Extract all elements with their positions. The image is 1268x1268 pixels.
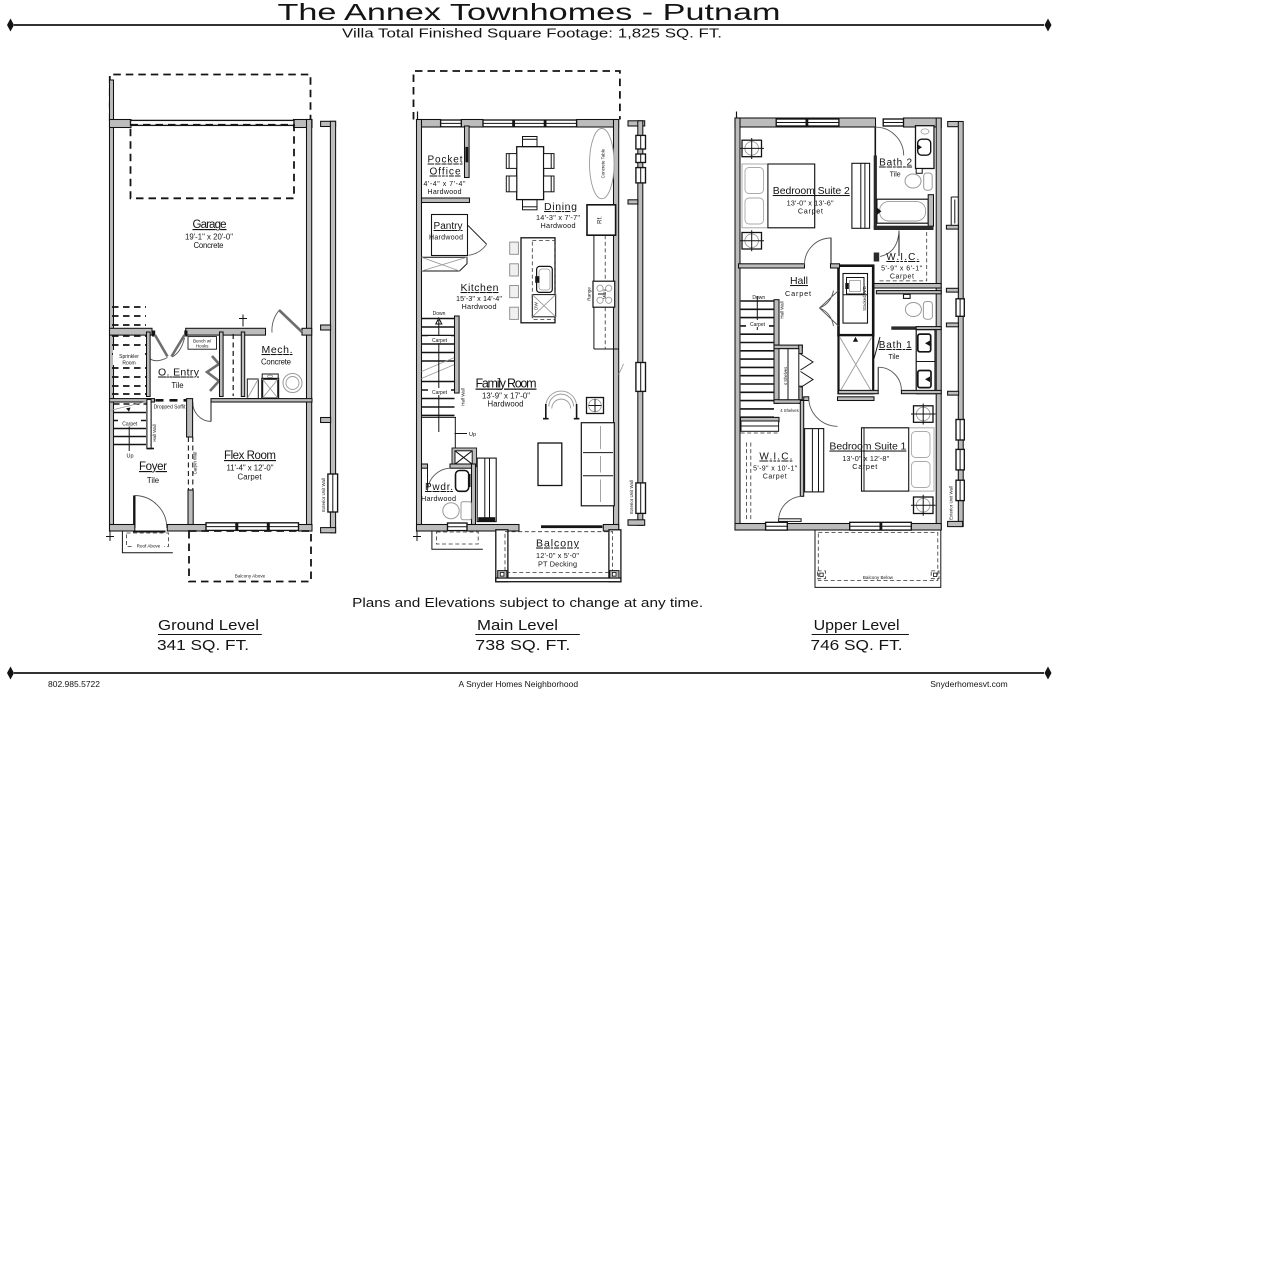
svg-text:Bath 1: Bath 1 bbox=[879, 340, 912, 351]
svg-text:Tile: Tile bbox=[890, 172, 901, 179]
svg-text:Carpet: Carpet bbox=[890, 274, 914, 281]
svg-text:Hardwood: Hardwood bbox=[428, 189, 462, 196]
svg-text:Micro: Micro bbox=[602, 288, 607, 299]
svg-text:Hall Wall: Hall Wall bbox=[780, 301, 785, 318]
svg-text:Plans and Elevations subject t: Plans and Elevations subject to change a… bbox=[352, 595, 703, 610]
svg-text:11'-4" x 12'-0": 11'-4" x 12'-0" bbox=[227, 464, 274, 473]
svg-text:W.I.C.: W.I.C. bbox=[886, 252, 919, 263]
svg-text:Snyderhomesvt.com: Snyderhomesvt.com bbox=[930, 679, 1007, 689]
svg-text:Concrete Table: Concrete Table bbox=[601, 148, 606, 178]
svg-text:4 Shelves: 4 Shelves bbox=[780, 408, 798, 413]
svg-text:Carpet: Carpet bbox=[122, 422, 138, 428]
svg-text:Dining: Dining bbox=[544, 201, 577, 213]
svg-text:Ground Level: Ground Level bbox=[158, 618, 259, 634]
svg-text:746 SQ. FT.: 746 SQ. FT. bbox=[811, 638, 903, 654]
svg-text:Hardwood: Hardwood bbox=[429, 235, 463, 242]
svg-text:Carpet: Carpet bbox=[432, 390, 448, 396]
svg-text:Roof Above: Roof Above bbox=[137, 544, 161, 549]
svg-text:Carpet: Carpet bbox=[852, 462, 877, 471]
svg-text:PT Decking: PT Decking bbox=[538, 560, 577, 569]
svg-text:Down: Down bbox=[752, 295, 765, 301]
svg-text:O. Entry: O. Entry bbox=[158, 367, 200, 379]
svg-text:Carpet: Carpet bbox=[785, 289, 811, 298]
svg-text:Dropped Soffit: Dropped Soffit bbox=[154, 405, 186, 411]
svg-text:Hardwood: Hardwood bbox=[488, 400, 524, 409]
svg-text:Hardwood: Hardwood bbox=[541, 221, 576, 230]
svg-text:Balcony: Balcony bbox=[536, 538, 580, 550]
svg-text:Family Room: Family Room bbox=[476, 377, 537, 391]
svg-text:Kitchen: Kitchen bbox=[461, 282, 499, 294]
svg-text:4 Shelves: 4 Shelves bbox=[783, 367, 788, 385]
svg-text:Carpet: Carpet bbox=[238, 473, 263, 482]
svg-text:Balcony Below: Balcony Below bbox=[863, 575, 894, 580]
svg-text:Carpet: Carpet bbox=[432, 338, 448, 344]
svg-text:The Annex Townhomes - Putnam: The Annex Townhomes - Putnam bbox=[278, 0, 781, 25]
svg-text:Stacked W/D: Stacked W/D bbox=[862, 286, 867, 310]
svg-text:Exterior Unit Wall: Exterior Unit Wall bbox=[321, 478, 326, 512]
svg-text:Pantry: Pantry bbox=[434, 221, 463, 232]
svg-text:Bath 2: Bath 2 bbox=[879, 158, 912, 169]
svg-text:Office: Office bbox=[430, 167, 461, 178]
svg-text:Flex Room: Flex Room bbox=[224, 450, 276, 462]
svg-text:Concrete: Concrete bbox=[261, 358, 291, 367]
svg-text:5'-9" x 6'-1": 5'-9" x 6'-1" bbox=[881, 266, 923, 273]
svg-text:Half Wall: Half Wall bbox=[461, 388, 466, 405]
svg-text:Carpet Wall: Carpet Wall bbox=[193, 452, 198, 475]
svg-text:341 SQ. FT.: 341 SQ. FT. bbox=[157, 638, 249, 654]
svg-text:W.I.C.: W.I.C. bbox=[759, 452, 792, 463]
svg-text:Foyer: Foyer bbox=[139, 461, 167, 473]
svg-text:Bench w/: Bench w/ bbox=[193, 338, 212, 343]
svg-text:Hardwood: Hardwood bbox=[462, 302, 497, 311]
svg-text:Carpet: Carpet bbox=[750, 322, 766, 328]
svg-text:Tile: Tile bbox=[888, 354, 899, 361]
svg-text:Concrete: Concrete bbox=[194, 241, 224, 250]
svg-text:Exterior Unit Wall: Exterior Unit Wall bbox=[949, 486, 954, 520]
svg-text:Carpet: Carpet bbox=[798, 207, 823, 216]
svg-text:Sprinkler: Sprinkler bbox=[119, 354, 139, 360]
svg-text:Tile: Tile bbox=[171, 381, 183, 390]
svg-text:Hardwood: Hardwood bbox=[421, 494, 456, 503]
svg-text:Upper Level: Upper Level bbox=[814, 618, 900, 634]
svg-text:738 SQ. FT.: 738 SQ. FT. bbox=[475, 638, 570, 654]
svg-text:Mech.: Mech. bbox=[262, 344, 293, 356]
svg-text:Garage: Garage bbox=[193, 219, 227, 231]
svg-text:Up: Up bbox=[126, 454, 133, 460]
svg-text:Range: Range bbox=[586, 287, 591, 301]
svg-text:A Snyder Homes Neighborhood: A Snyder Homes Neighborhood bbox=[459, 679, 579, 689]
svg-text:Up: Up bbox=[469, 432, 476, 438]
svg-text:DW: DW bbox=[534, 302, 539, 310]
svg-text:Pocket: Pocket bbox=[428, 155, 463, 166]
svg-text:5'-9" x 10'-1": 5'-9" x 10'-1" bbox=[753, 466, 798, 473]
svg-text:Tile: Tile bbox=[147, 476, 159, 485]
svg-text:Balcony Above: Balcony Above bbox=[235, 574, 266, 579]
svg-text:Carpet: Carpet bbox=[763, 474, 787, 481]
svg-text:Hall: Hall bbox=[790, 275, 808, 287]
svg-text:Room: Room bbox=[122, 361, 135, 367]
svg-text:Bedroom Suite 1: Bedroom Suite 1 bbox=[829, 441, 906, 453]
svg-text:Exterior Unit Wall: Exterior Unit Wall bbox=[629, 480, 634, 514]
svg-text:802.985.5722: 802.985.5722 bbox=[48, 679, 100, 689]
svg-text:Down: Down bbox=[433, 311, 446, 317]
svg-text:Hooks: Hooks bbox=[196, 344, 209, 349]
svg-text:Rf.: Rf. bbox=[598, 216, 604, 224]
svg-text:4'-4" x 7'-4": 4'-4" x 7'-4" bbox=[424, 181, 467, 188]
svg-text:Hall Wall: Hall Wall bbox=[152, 424, 157, 441]
svg-text:Main Level: Main Level bbox=[477, 618, 558, 634]
svg-text:Pwdr.: Pwdr. bbox=[425, 482, 453, 493]
svg-text:Bedroom Suite 2: Bedroom Suite 2 bbox=[773, 185, 850, 197]
svg-text:Villa Total Finished Square Fo: Villa Total Finished Square Footage: 1,8… bbox=[342, 27, 722, 41]
